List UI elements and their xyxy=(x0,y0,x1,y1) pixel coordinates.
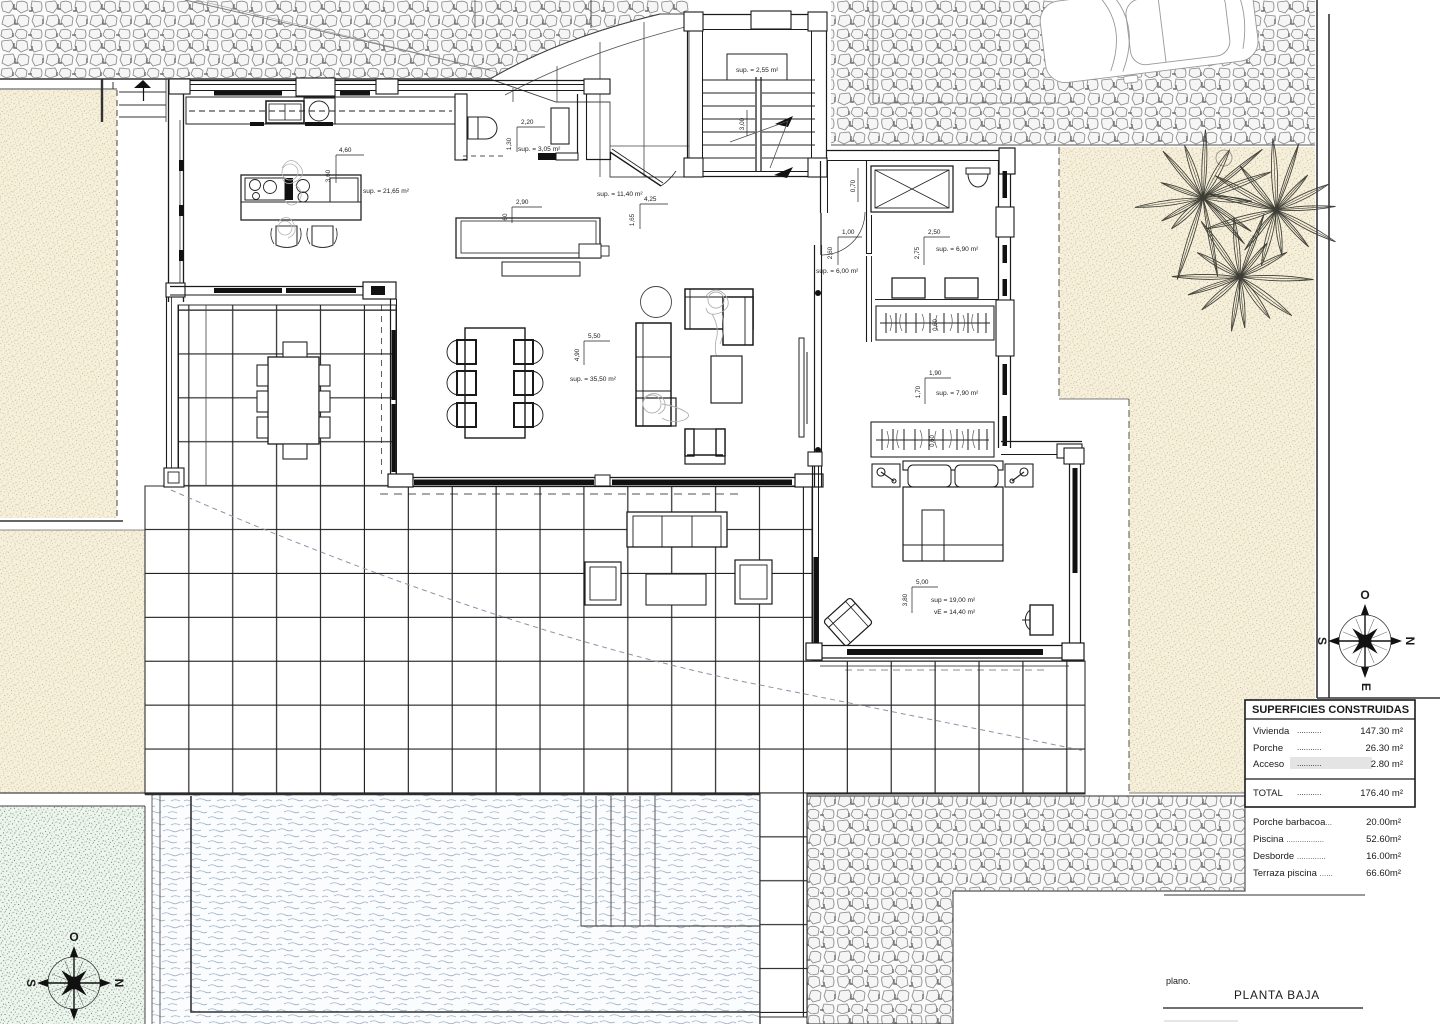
svg-text:2,60: 2,60 xyxy=(827,246,834,259)
svg-text:60: 60 xyxy=(502,213,509,221)
svg-text:5,50: 5,50 xyxy=(588,333,601,340)
svg-text:0,60: 0,60 xyxy=(930,435,936,447)
svg-text:66.60m²: 66.60m² xyxy=(1366,868,1401,879)
svg-text:1,00: 1,00 xyxy=(842,229,855,236)
svg-text:Porche: Porche xyxy=(1253,743,1283,754)
svg-text:52.60m²: 52.60m² xyxy=(1366,834,1401,845)
svg-text:sup. = 6,00 m²: sup. = 6,00 m² xyxy=(816,268,859,275)
svg-text:Terraza piscina ......: Terraza piscina ...... xyxy=(1253,868,1333,879)
svg-text:2.80 m²: 2.80 m² xyxy=(1371,759,1403,770)
svg-text:plano.: plano. xyxy=(1166,976,1191,986)
svg-text:sup. = 21,65 m²: sup. = 21,65 m² xyxy=(363,188,410,195)
svg-text:sup. = 11,40 m²: sup. = 11,40 m² xyxy=(597,191,643,198)
svg-text:2,75: 2,75 xyxy=(914,246,921,259)
svg-text:SUPERFICIES CONSTRUIDAS: SUPERFICIES CONSTRUIDAS xyxy=(1252,704,1409,716)
svg-text:0,60: 0,60 xyxy=(933,319,939,331)
svg-text:TOTAL: TOTAL xyxy=(1253,788,1283,799)
svg-text:147.30 m²: 147.30 m² xyxy=(1360,726,1403,737)
svg-text:0,70: 0,70 xyxy=(850,179,857,192)
svg-text:S: S xyxy=(1315,637,1329,645)
svg-text:20.00m²: 20.00m² xyxy=(1366,817,1401,828)
svg-text:2,20: 2,20 xyxy=(521,119,534,126)
svg-text:sup. = 3,05 m²: sup. = 3,05 m² xyxy=(518,146,561,153)
svg-text:1,70: 1,70 xyxy=(915,385,922,398)
svg-text:O: O xyxy=(1360,588,1369,602)
svg-text:...........: ........... xyxy=(1297,788,1321,797)
svg-text:Acceso: Acceso xyxy=(1253,759,1284,770)
svg-text:2,90: 2,90 xyxy=(516,199,529,206)
svg-text:sup. = 2,55 m²: sup. = 2,55 m² xyxy=(736,67,779,74)
svg-text:Porche barbacoa...: Porche barbacoa... xyxy=(1253,817,1332,828)
svg-text:sup. = 6,90 m²: sup. = 6,90 m² xyxy=(936,246,979,253)
svg-text:4,25: 4,25 xyxy=(644,196,657,203)
svg-text:Piscina .................: Piscina ................. xyxy=(1253,834,1324,845)
svg-text:26.30 m²: 26.30 m² xyxy=(1366,743,1404,754)
svg-text:PLANTA BAJA: PLANTA BAJA xyxy=(1234,988,1320,1002)
svg-text:16.00m²: 16.00m² xyxy=(1366,851,1401,862)
svg-text:Vivienda: Vivienda xyxy=(1253,726,1290,737)
svg-text:3,00: 3,00 xyxy=(739,117,746,130)
svg-text:...........: ........... xyxy=(1297,759,1321,768)
svg-text:sup. = 35,50 m²: sup. = 35,50 m² xyxy=(570,376,617,383)
svg-text:2,50: 2,50 xyxy=(928,229,941,236)
svg-text:...........: ........... xyxy=(1297,743,1321,752)
svg-text:Desborde .............: Desborde ............. xyxy=(1253,851,1326,862)
svg-text:4,60: 4,60 xyxy=(339,147,352,154)
svg-text:3,80: 3,80 xyxy=(902,593,909,606)
svg-text:1,90: 1,90 xyxy=(929,370,942,377)
svg-text:176.40 m²: 176.40 m² xyxy=(1360,788,1403,799)
svg-text:3,60: 3,60 xyxy=(325,169,332,182)
svg-text:...........: ........... xyxy=(1297,726,1321,735)
svg-text:4,90: 4,90 xyxy=(574,348,581,361)
svg-text:N: N xyxy=(1403,637,1417,646)
svg-text:1,30: 1,30 xyxy=(506,137,513,150)
svg-text:5,00: 5,00 xyxy=(916,579,929,586)
svg-text:vE = 14,40 m²: vE = 14,40 m² xyxy=(934,609,976,616)
svg-text:1,65: 1,65 xyxy=(629,213,636,226)
svg-text:sup = 19,00 m²: sup = 19,00 m² xyxy=(931,597,976,604)
svg-text:sup. = 7,90 m²: sup. = 7,90 m² xyxy=(936,390,979,397)
svg-text:E: E xyxy=(1359,683,1373,691)
